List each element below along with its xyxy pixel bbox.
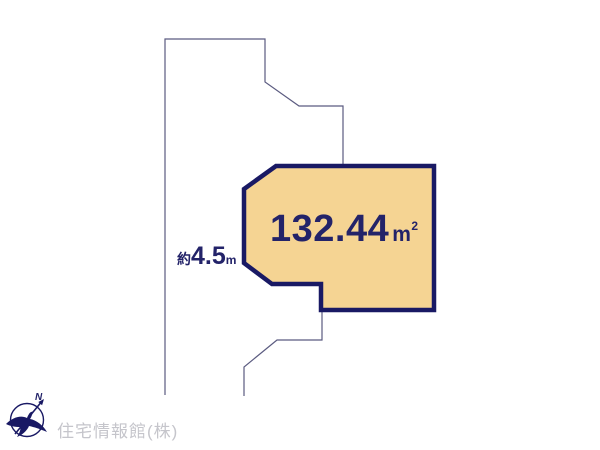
road-width-label: 約4.5m [177,242,236,270]
road-width-value: 4.5 [191,242,226,270]
company-name: 住宅情報館(株) [57,422,178,441]
parcel-area-unit: m [392,223,411,246]
road-outline-lower [244,311,322,396]
parcel-area-unit-superscript: 2 [411,219,418,233]
compass-bird [6,412,47,437]
plot-diagram-page: 132.44m2 約4.5m N 住宅情報館(株) [0,0,600,450]
plot-diagram-canvas: 132.44m2 約4.5m N 住宅情報館(株) [0,0,600,450]
road-width-unit: m [226,253,237,267]
road-width-prefix: 約 [177,251,191,267]
compass-icon: N [6,392,47,437]
parcel-area-value: 132.44 [270,208,389,250]
compass-north-label: N [35,392,43,403]
